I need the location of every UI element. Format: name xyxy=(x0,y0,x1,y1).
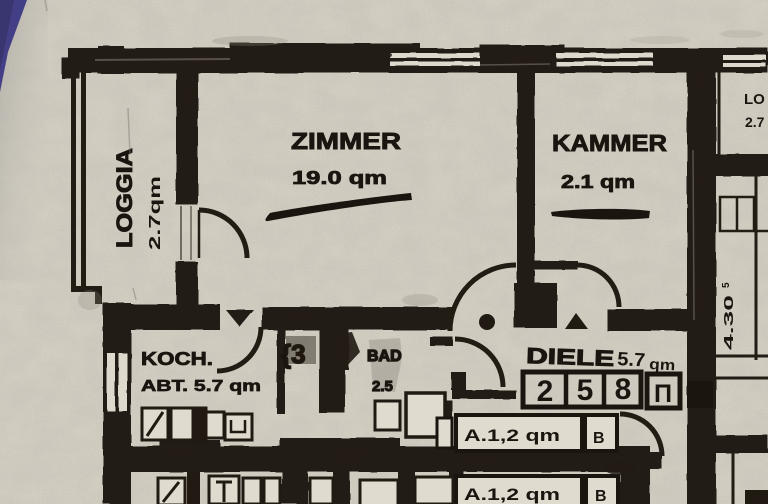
svg-text:5: 5 xyxy=(577,374,594,407)
svg-text:ZIMMER: ZIMMER xyxy=(291,128,401,154)
svg-text:A.1,2 qm: A.1,2 qm xyxy=(464,485,560,504)
svg-text:5: 5 xyxy=(721,282,732,288)
svg-text:2.7qm: 2.7qm xyxy=(147,176,164,250)
svg-text:4.30: 4.30 xyxy=(721,295,736,350)
svg-text:2.1 qm: 2.1 qm xyxy=(561,171,635,192)
svg-text:5.7: 5.7 xyxy=(617,349,646,371)
svg-text:LO: LO xyxy=(744,91,765,108)
svg-text:KAMMER: KAMMER xyxy=(552,130,667,156)
svg-text:8: 8 xyxy=(615,373,632,406)
svg-text:Π: Π xyxy=(654,380,672,408)
svg-text:B: B xyxy=(595,488,607,504)
svg-text:19.0 qm: 19.0 qm xyxy=(292,167,387,188)
svg-text:LOGGIA: LOGGIA xyxy=(112,148,137,248)
svg-text:B: B xyxy=(593,430,605,447)
svg-text:KOCH.: KOCH. xyxy=(141,349,213,369)
svg-text:DIELE: DIELE xyxy=(526,343,615,371)
svg-text:ABT. 5.7 qm: ABT. 5.7 qm xyxy=(141,378,261,395)
svg-text:2: 2 xyxy=(537,375,554,408)
svg-text:2.7: 2.7 xyxy=(745,114,765,130)
svg-text:A.1,2 qm: A.1,2 qm xyxy=(464,426,560,445)
